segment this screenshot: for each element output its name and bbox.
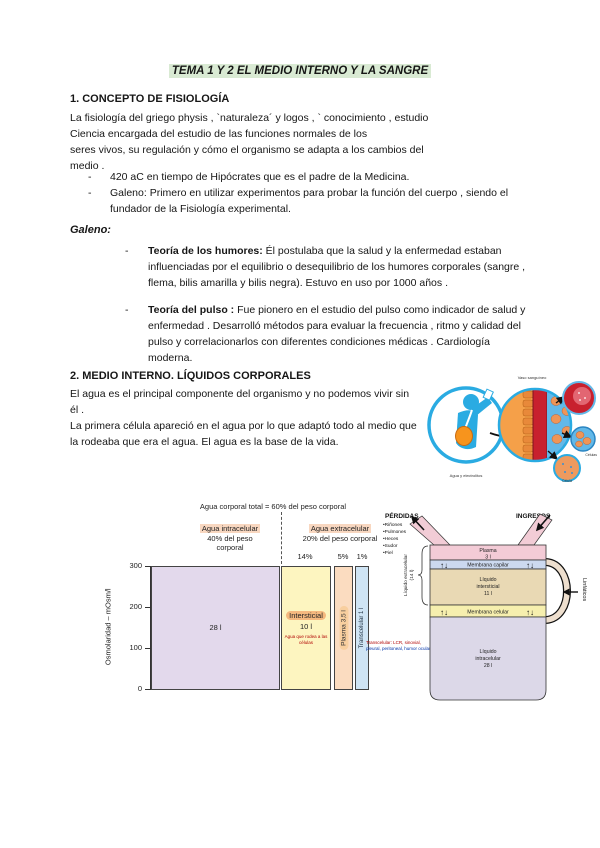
section1-paragraph: La fisiología del griego physis , `natur… [70,110,545,174]
band-label: intracelular [475,656,501,662]
extracellular-group-label: Agua extracelular 20% del peso corporal [288,524,392,543]
water-tissue-illustration: Agua y electrolitos [420,371,598,483]
document-page: TEMA 1 Y 2 EL MEDIO INTERNO Y LA SANGRE … [0,0,600,848]
compartment-name: Intersticial [286,611,326,621]
volume-label: 10 l [300,622,312,632]
extracellular-label: Líquido extracelular [403,554,409,596]
bullet-dash: - [88,169,110,185]
paragraph: La primera célula apareció en el agua po… [70,418,418,450]
volume-label: Transcelular 1 l [359,608,365,649]
axis-tick [145,648,150,649]
band-label: Membrana capilar [467,563,509,569]
term-bold: Teoría del pulso : [148,304,234,316]
list-item: - Galeno: Primero en utilizar experiment… [88,185,533,217]
perdidas-item: •Piel [383,550,393,556]
group-sublabel: corporal [172,543,288,553]
volume-label: 28 l [209,623,221,633]
galeno-heading: Galeno: [70,224,111,236]
percent-label: 1% [354,552,370,562]
interstitial-bar: Intersticial 10 l Agua que rodea a las c… [281,566,331,690]
list-item: - Teoría del pulso : Fue pionero en el e… [125,302,537,366]
cell-caption: Célula [562,479,572,483]
list-item: - Teoría de los humores: Él postulaba qu… [125,243,537,291]
y-axis-label: Osmolaridad – mOsm/l [103,562,113,692]
paragraph: El agua es el principal componente del o… [70,386,418,418]
paragraph-line: La fisiología del griego physis , `natur… [70,110,545,126]
perdidas-item: •Riñones [383,522,403,528]
person-drinking-icon [429,388,503,462]
paragraph-line: Ciencia encargada del estudio de las fun… [70,126,545,142]
group-label-text: Agua intracelular [200,524,260,533]
intracellular-group-label: Agua intracelular 40% del peso corporal [172,524,288,553]
blood-vessel-icon [563,382,595,414]
extracellular-volume: (14 l) [409,569,415,580]
axis-tick [145,607,150,608]
transcellular-bar: Transcelular 1 l [355,566,369,690]
paragraph-line: seres vivos, su regulación y cómo el org… [70,142,545,158]
cells-caption: Células [585,453,597,457]
group-sublabel: 20% del peso corporal [288,534,392,544]
micro-note: Agua que rodea a las células [282,634,330,646]
band-label: 3 l [485,555,490,561]
vessel-caption: Vaso sanguíneo [518,375,547,380]
bullet-dash: - [125,302,148,366]
plasma-bar: Plasma 3,5 l [334,566,353,690]
intracellular-bar: 28 l [151,566,280,690]
band-label: Plasma [479,548,496,554]
y-tick-label: 100 [118,643,142,652]
list-item: - 420 aC en tiempo de Hipócrates que es … [88,169,533,185]
bullet-text: Teoría del pulso : Fue pionero en el est… [148,302,537,366]
term-bold: Teoría de los humores: [148,245,263,257]
extracellular-bracket [418,546,428,605]
band-label: Líquido [479,649,496,655]
group-sublabel: 40% del peso [172,534,288,544]
group-label-text: Agua extracelular [309,524,371,533]
bullet-text: Teoría de los humores: Él postulaba que … [148,243,537,291]
y-tick-label: 200 [118,602,142,611]
exchange-arrows-icon: ↑↓ [440,608,448,617]
cell-icon [554,455,580,481]
band-label: intersticial [476,584,499,590]
stomach-icon [456,427,473,446]
percent-label: 14% [280,552,330,562]
section2-heading: 2. MEDIO INTERNO. LÍQUIDOS CORPORALES [70,370,311,382]
band-label: Líquido [479,577,496,583]
fluid-compartments-diagram: PÉRDIDAS •Riñones •Pulmones •Heces •Sudo… [378,504,590,716]
lymphatics-label: Linfáticos [581,578,587,601]
band-label: 11 l [484,591,492,597]
perdidas-item: •Pulmones [383,529,407,535]
volume-label: Plasma 3,5 l [339,606,348,650]
section2-paragraphs: El agua es el principal componente del o… [70,386,418,450]
page-title: TEMA 1 Y 2 EL MEDIO INTERNO Y LA SANGRE [0,65,600,77]
axis-tick [145,566,150,567]
section1-bullets: - 420 aC en tiempo de Hipócrates que es … [88,169,533,217]
exchange-arrows-icon: ↑↓ [440,561,448,570]
y-tick-label: 300 [118,561,142,570]
chart-title: Agua corporal total = 60% del peso corpo… [158,502,388,512]
perdidas-item: •Sudor [383,543,398,549]
bullet-text: 420 aC en tiempo de Hipócrates que es el… [110,169,533,185]
section1-heading: 1. CONCEPTO DE FISIOLOGÍA [70,93,229,105]
tissue-cells-icon [571,427,595,451]
band-label: Membrana celular [467,610,509,616]
bullet-dash: - [125,243,148,291]
bullet-text: Galeno: Primero en utilizar experimentos… [110,185,533,217]
perdidas-item: •Heces [383,536,399,542]
exchange-arrows-icon: ↑↓ [526,561,534,570]
bullet-dash: - [88,185,110,217]
person-caption: Agua y electrolitos [450,473,483,478]
exchange-arrows-icon: ↑↓ [526,608,534,617]
band-label: 28 l [484,663,492,669]
percent-label: 5% [334,552,352,562]
y-tick-label: 0 [118,684,142,693]
axis-tick [145,689,150,690]
page-title-text: TEMA 1 Y 2 EL MEDIO INTERNO Y LA SANGRE [169,64,431,78]
